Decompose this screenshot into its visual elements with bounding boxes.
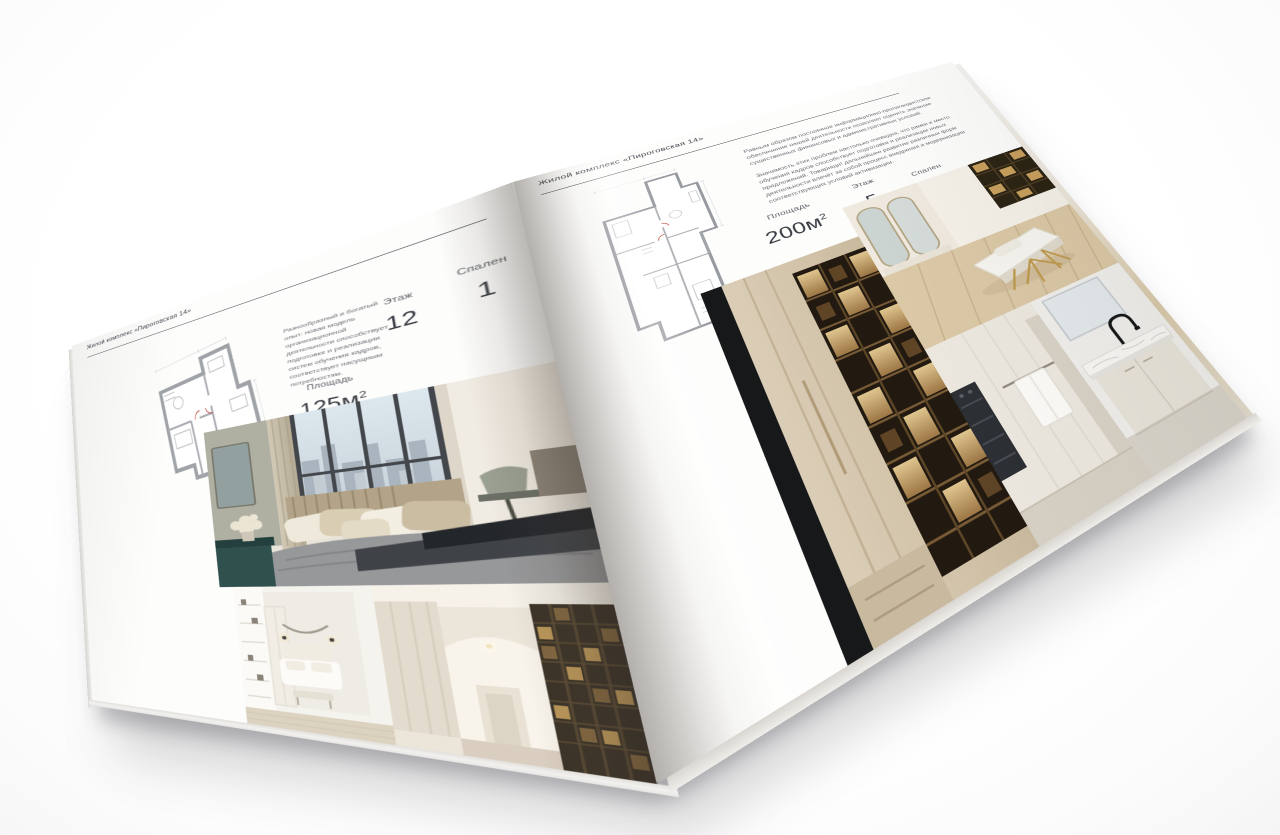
right-area-stat: Площадь 200м2 (748, 196, 840, 252)
photo-white-bedroom (233, 585, 397, 745)
left-bedrooms-stat: Спален 1 (441, 248, 532, 311)
left-floor-stat: Этаж 12 (362, 283, 441, 340)
brochure-photo: Жилой комплекс «Пироговская 14» (0, 0, 1280, 835)
magazine-spread: Жилой комплекс «Пироговская 14» (0, 0, 1280, 835)
